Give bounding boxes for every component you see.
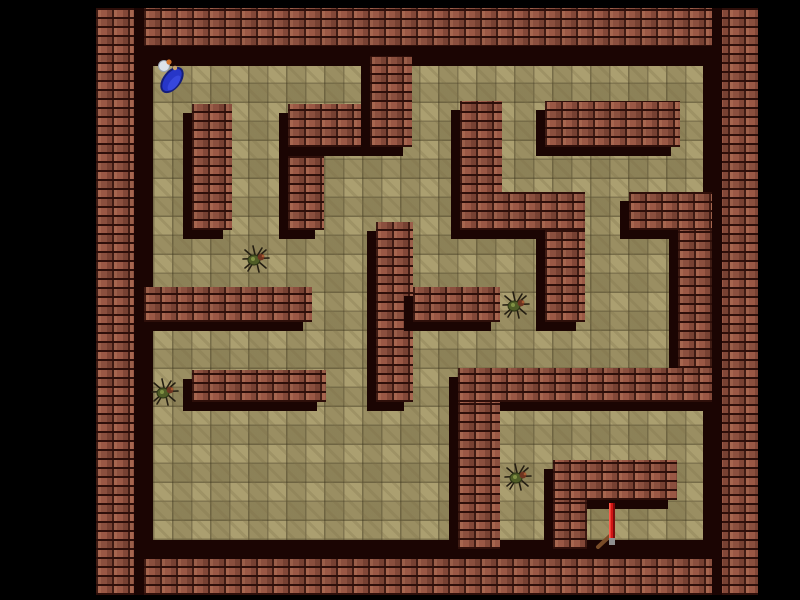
enemy-spider-3-sprite [151,378,179,406]
wall-bottom-right-arm [553,460,677,500]
wall-left-column [192,104,232,230]
outer-wall-left [96,8,144,595]
wall-long-right [413,287,500,322]
wall-bottom-right-leg [553,500,587,549]
wall-center-foot [460,192,585,230]
wall-top-hanger [370,56,412,147]
wall-center-down [545,230,585,322]
wall-right-leg [678,230,712,368]
enemy-spider-2-sprite [502,291,530,319]
outer-wall-top [96,8,758,56]
wall-right-arm [629,192,712,230]
game-viewport[interactable] [0,0,800,600]
wall-long-left [144,287,312,322]
outer-wall-right [712,8,758,595]
item-sword-sprite [594,501,624,549]
wall-mid-column [376,222,413,402]
player-sprite [152,56,188,96]
outer-wall-bottom [96,549,758,595]
enemy-spider-4-sprite [504,463,532,491]
wall-lower-stem [458,402,500,549]
enemy-spider-1-sprite [242,245,270,273]
wall-top-right-block [545,101,680,147]
wall-lower-long [458,368,712,402]
wall-lower-mid [192,370,326,402]
